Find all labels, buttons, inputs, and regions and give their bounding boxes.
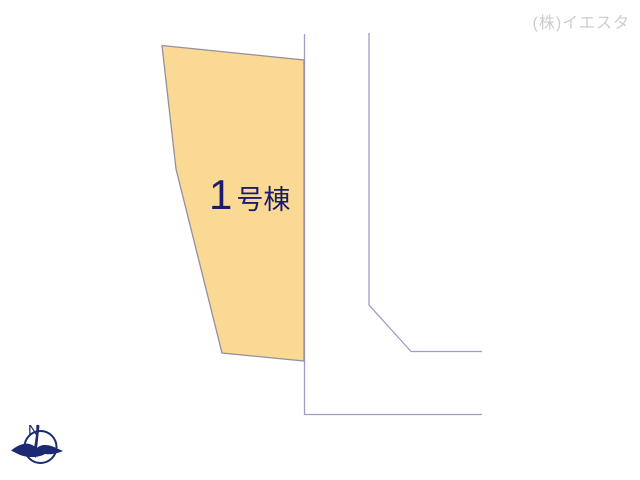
compass-icon: N bbox=[8, 412, 72, 476]
site-plan-diagram bbox=[0, 0, 640, 480]
lot-number: 1 bbox=[209, 174, 232, 216]
lot-label: 1 号棟 bbox=[209, 174, 290, 216]
lot-suffix: 号棟 bbox=[236, 187, 290, 214]
road-boundary-left bbox=[305, 34, 483, 415]
company-watermark: (株)イエスタ bbox=[533, 9, 631, 33]
site-plan: (株)イエスタ 1 号棟 N bbox=[0, 0, 640, 480]
road-boundary-right bbox=[369, 33, 482, 352]
